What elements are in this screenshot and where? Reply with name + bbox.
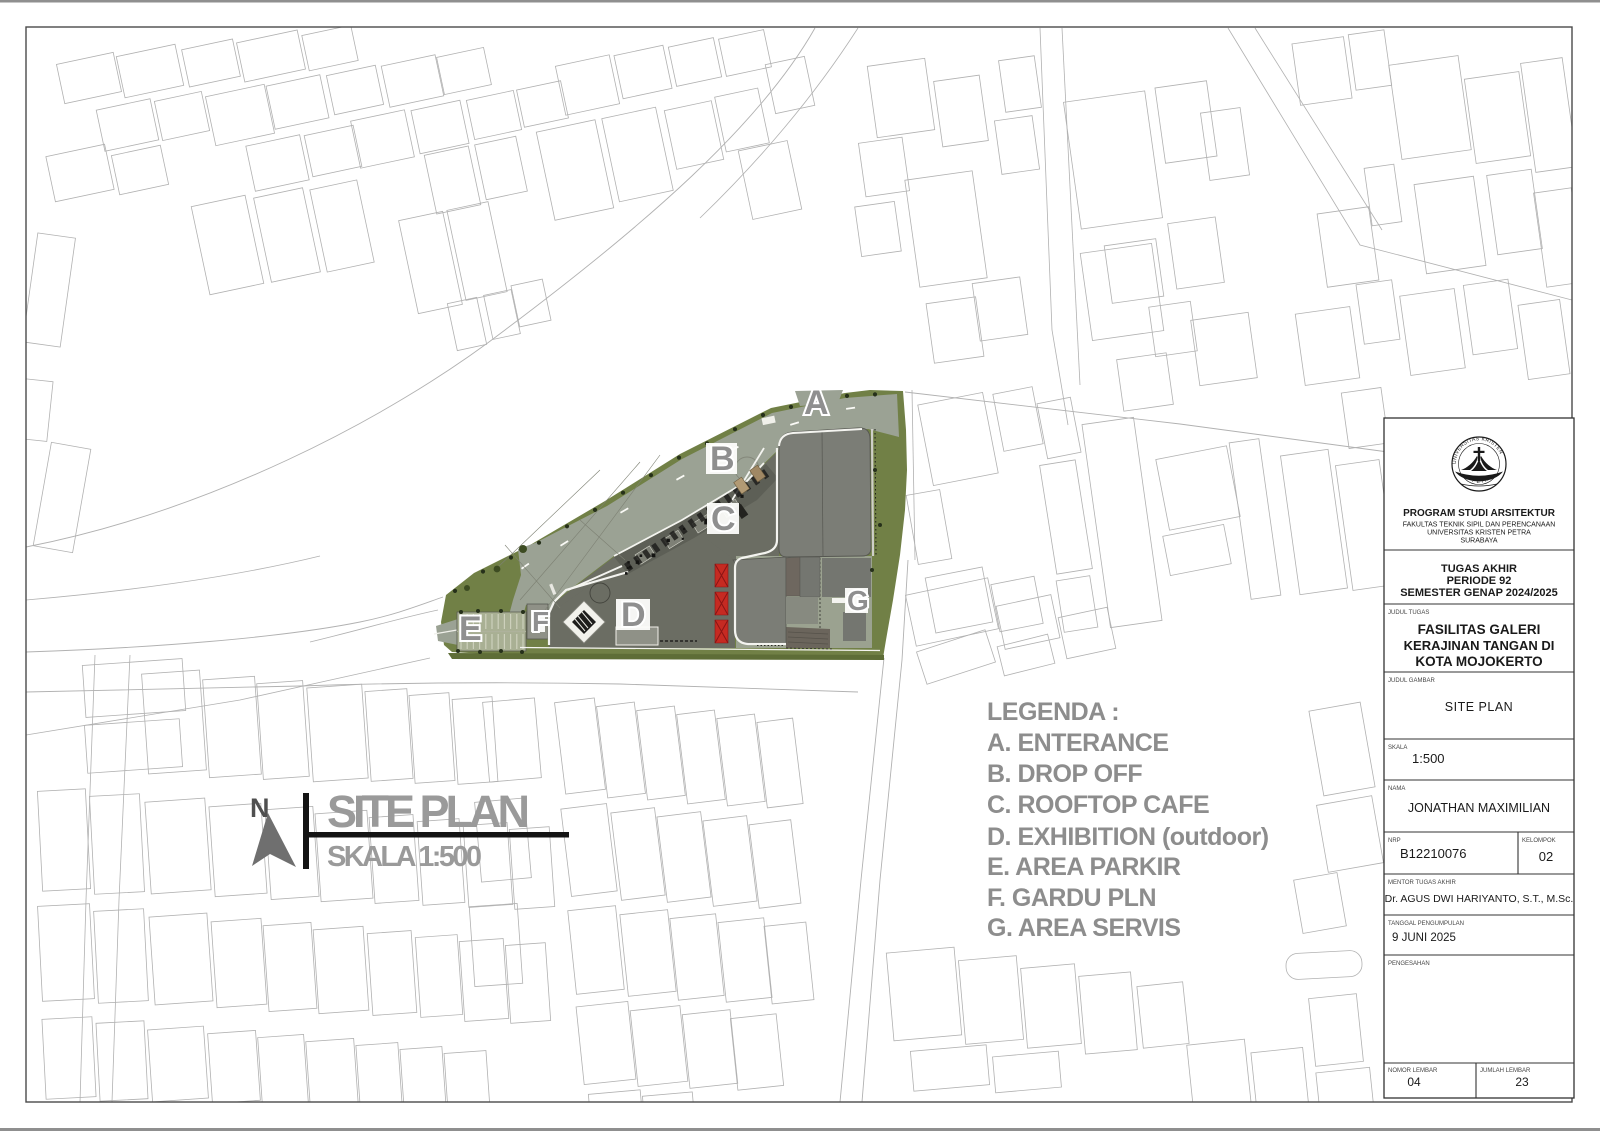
- svg-text:F: F: [532, 606, 549, 637]
- svg-text:G. AREA SERVIS: G. AREA SERVIS: [987, 914, 1181, 942]
- svg-text:NOMOR LEMBAR: NOMOR LEMBAR: [1388, 1068, 1438, 1074]
- svg-text:SURABAYA: SURABAYA: [1460, 538, 1497, 545]
- svg-text:02: 02: [1539, 849, 1553, 864]
- svg-text:TANGGAL PENGUMPULAN: TANGGAL PENGUMPULAN: [1388, 921, 1464, 927]
- svg-text:SITE PLAN: SITE PLAN: [327, 786, 528, 837]
- svg-text:C. ROOFTOP CAFE: C. ROOFTOP CAFE: [987, 791, 1209, 819]
- svg-text:D: D: [621, 596, 646, 634]
- svg-text:B: B: [710, 440, 735, 478]
- svg-text:PROGRAM STUDI ARSITEKTUR: PROGRAM STUDI ARSITEKTUR: [1403, 508, 1556, 519]
- svg-text:FASILITAS GALERI: FASILITAS GALERI: [1418, 622, 1541, 637]
- svg-text:JUMLAH LEMBAR: JUMLAH LEMBAR: [1480, 1068, 1531, 1074]
- svg-text:SEMESTER GENAP 2024/2025: SEMESTER GENAP 2024/2025: [1400, 587, 1558, 599]
- svg-text:04: 04: [1407, 1075, 1421, 1089]
- svg-text:TUGAS AKHIR: TUGAS AKHIR: [1441, 563, 1517, 575]
- svg-text:PERIODE 92: PERIODE 92: [1447, 575, 1512, 587]
- svg-text:JONATHAN MAXIMILIAN: JONATHAN MAXIMILIAN: [1408, 801, 1550, 815]
- svg-text:KELOMPOK: KELOMPOK: [1522, 838, 1556, 844]
- svg-text:FAKULTAS TEKNIK SIPIL DAN PERE: FAKULTAS TEKNIK SIPIL DAN PERENCANAAN: [1403, 522, 1556, 529]
- svg-text:1:500: 1:500: [1412, 751, 1445, 766]
- svg-text:E. AREA PARKIR: E. AREA PARKIR: [987, 853, 1181, 881]
- svg-text:MENTOR TUGAS AKHIR: MENTOR TUGAS AKHIR: [1388, 880, 1456, 886]
- svg-text:KOTA MOJOKERTO: KOTA MOJOKERTO: [1415, 654, 1542, 669]
- svg-text:E: E: [459, 610, 482, 648]
- svg-text:LEGENDA :: LEGENDA :: [987, 698, 1119, 726]
- svg-text:KERAJINAN TANGAN DI: KERAJINAN TANGAN DI: [1404, 638, 1555, 653]
- svg-text:B12210076: B12210076: [1400, 846, 1467, 861]
- svg-text:Dr. AGUS DWI HARIYANTO, S.T.,: Dr. AGUS DWI HARIYANTO, S.T., M.Sc.: [1385, 893, 1574, 905]
- svg-text:23: 23: [1515, 1075, 1529, 1089]
- svg-text:SITE PLAN: SITE PLAN: [1445, 700, 1513, 714]
- svg-text:B. DROP OFF: B. DROP OFF: [987, 760, 1142, 788]
- svg-text:NRP: NRP: [1388, 838, 1401, 844]
- svg-text:A. ENTERANCE: A. ENTERANCE: [987, 729, 1169, 757]
- svg-text:C: C: [711, 500, 736, 538]
- svg-text:F. GARDU PLN: F. GARDU PLN: [987, 884, 1156, 912]
- svg-text:9 JUNI 2025: 9 JUNI 2025: [1392, 932, 1456, 944]
- svg-text:A: A: [804, 384, 829, 422]
- svg-text:SKALA: SKALA: [1388, 745, 1407, 751]
- svg-text:JUDUL GAMBAR: JUDUL GAMBAR: [1388, 678, 1435, 684]
- svg-text:SKALA 1:500: SKALA 1:500: [327, 841, 481, 873]
- svg-text:PENGESAHAN: PENGESAHAN: [1388, 961, 1430, 967]
- svg-text:JUDUL TUGAS: JUDUL TUGAS: [1388, 610, 1429, 616]
- svg-text:D. EXHIBITION (outdoor): D. EXHIBITION (outdoor): [987, 823, 1269, 851]
- svg-text:UNIVERSITAS KRISTEN PETRA: UNIVERSITAS KRISTEN PETRA: [1427, 530, 1531, 537]
- svg-text:G: G: [847, 585, 869, 616]
- svg-text:NAMA: NAMA: [1388, 786, 1405, 792]
